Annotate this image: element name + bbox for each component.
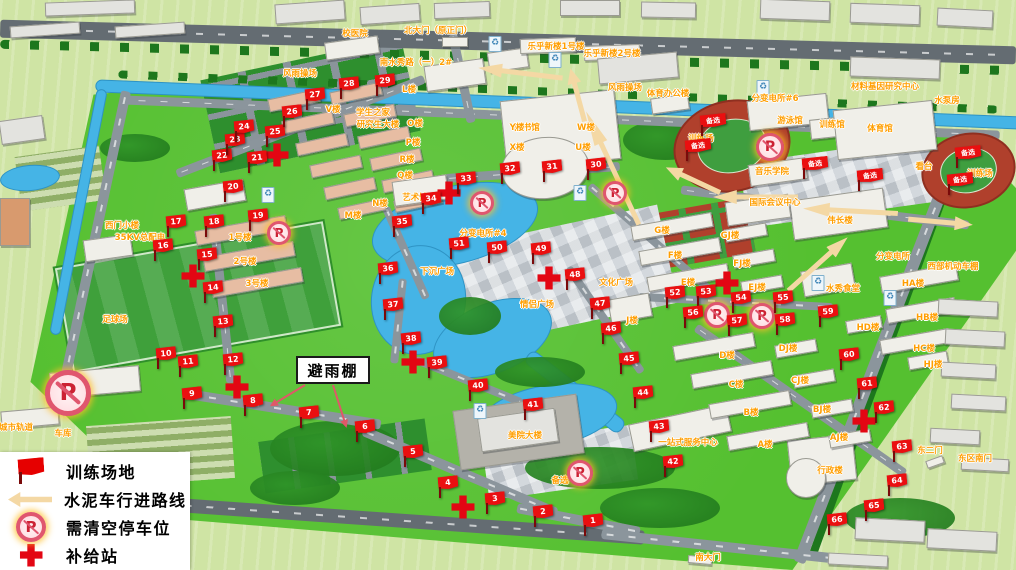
building [945,328,1006,347]
legend-label: 水泥车行进路线 [64,487,187,511]
training-flag-36: 36 [378,262,398,285]
clear-parking-marker: P [756,133,784,161]
building [45,0,135,17]
training-flag-12: 12 [223,353,243,376]
training-flag-54: 54 [731,291,751,314]
training-flag-3: 3 [485,492,505,515]
flag-pole [450,248,452,259]
training-flag-56: 56 [683,306,703,329]
map-label: 城市轨道 [0,421,33,433]
flag-pole [179,366,181,377]
training-flag-62: 62 [874,401,894,424]
map-label: HJ楼 [924,358,943,370]
map-label: 水秀食堂 [826,282,860,294]
map-label: 足球场 [102,313,128,325]
building [640,2,695,19]
flag-pole [566,279,568,290]
flag-pole [875,412,877,423]
legend-row-route: 水泥车行进路线 [8,485,182,513]
flag-pole [840,359,842,370]
flag-pole [774,302,776,313]
flag-pole [858,180,860,191]
map-label: HA楼 [902,277,924,289]
training-flag-49: 49 [531,242,551,265]
building [940,361,996,379]
flag-pole [356,431,358,442]
flag-pole [428,367,430,378]
map-label: 乐乎新楼2号楼 [584,47,641,59]
flag-pole [198,259,200,270]
map-label: 分变电所#6 [751,92,798,104]
training-flag-66: 66 [827,513,847,536]
map-label: 风雨操场 [608,81,642,93]
training-flag-15: 15 [197,248,217,271]
map-label: 南大门 [695,551,721,563]
legend-row-supply: 补给站 [8,541,182,569]
backup-flag: 备选 [700,114,726,137]
map-label: P楼 [406,136,421,148]
no-parking-icon: P [8,513,54,541]
building [442,37,468,47]
map-label: 2号楼 [234,255,257,267]
building [850,56,941,79]
clear-parking-marker: P [567,460,593,486]
flag-pole [224,364,226,375]
flag-pole [248,162,250,173]
training-flag-58: 58 [775,313,795,336]
flag-pole [244,405,246,416]
flag-banner: 备选 [946,172,973,187]
recycle-bin-icon: ♻ [884,290,897,306]
map-label: AJ楼 [830,431,848,443]
recycle-bin-icon: ♻ [574,185,587,201]
training-flag-47: 47 [590,297,610,320]
backup-flag: 备选 [947,173,973,196]
flag-pole [819,316,821,327]
map-label: 北大门（原正门） [404,24,472,36]
legend-label: 训练场地 [66,459,136,483]
training-flag-14: 14 [203,281,223,304]
building [850,3,921,25]
flag-pole [157,358,159,369]
legend-label: 需清空停车位 [66,515,171,539]
map-label: HB楼 [916,311,938,323]
flag-pole [167,226,169,237]
flag-pole [803,168,805,179]
map-label: 体育办公楼 [647,87,690,99]
map-label: 国际会议中心 [749,196,800,208]
map-label: 东二门 [917,444,943,456]
flag-pole [532,253,534,264]
training-flag-18: 18 [204,215,224,238]
map-label: CJ楼 [791,374,809,386]
building [930,427,981,445]
map-label: DJ楼 [779,342,798,354]
flag-pole [213,160,215,171]
building [828,552,889,567]
training-flag-64: 64 [887,474,907,497]
building [0,198,30,246]
map-label: 音乐学院 [755,165,789,177]
flag-pole [266,136,268,147]
clear-parking-marker: P [267,221,291,245]
map-label: 东区南门 [958,452,992,464]
map-label: Q楼 [397,169,413,181]
flag-pole [602,333,604,344]
flag-banner: 备选 [684,138,711,153]
building [0,115,45,145]
flag-pole [457,183,459,194]
map-label: C楼 [729,378,744,390]
flag-pole [584,525,586,536]
flag-pole [666,297,668,308]
flag-pole [686,150,688,161]
training-flag-31: 31 [542,160,562,183]
legend-label: 补给站 [66,543,119,567]
map-label: 校医院 [342,27,368,39]
flag-pole [684,317,686,328]
building [359,3,420,25]
map-label: 研究生大楼 [357,118,400,130]
map-label: FJ楼 [733,257,750,269]
flag-pole [587,169,589,180]
flag-pole [728,325,730,336]
training-flag-43: 43 [649,420,669,443]
map-label: X楼 [509,141,524,153]
training-flag-29: 29 [375,74,395,97]
flag-pole [620,363,622,374]
flag-pole [634,397,636,408]
map-label: F楼 [668,249,682,261]
flag-pole [650,431,652,442]
tree-grove [270,421,400,476]
training-flag-13: 13 [213,315,233,338]
building [925,455,945,469]
map-label: Y楼 [510,121,525,133]
map-label: 游泳馆 [777,114,803,126]
map-label: 材料基因研究中心 [851,80,919,92]
map-label: 行政楼 [817,464,843,476]
training-flag-7: 7 [299,406,319,429]
tree-grove [250,471,340,505]
map-label: 看台 [915,160,932,172]
flag-pole [300,417,302,428]
training-flag-19: 19 [248,209,268,232]
map-legend: 训练场地 水泥车行进路线 P 需清空停车位 补给站 [0,452,190,570]
training-flag-61: 61 [857,377,877,400]
flag-pole [226,144,228,155]
map-label: 伟长楼 [827,214,853,226]
recycle-bin-icon: ♻ [262,187,275,203]
clear-parking-marker: P [45,370,91,416]
rain-shelter-callout: 避雨棚 [296,356,370,384]
flag-pole [865,510,867,521]
recycle-bin-icon: ♻ [474,403,487,419]
flag-pole [948,184,950,195]
building [938,298,999,317]
map-label: 1号楼 [229,231,252,243]
building [760,0,831,21]
training-flag-21: 21 [247,151,267,174]
training-flag-55: 55 [773,291,793,314]
backup-flag: 备选 [802,157,828,180]
legend-row-parking: P 需清空停车位 [8,513,182,541]
flag-pole [249,220,251,231]
flag-pole [888,485,890,496]
training-flag-30: 30 [586,158,606,181]
building [937,8,994,29]
training-flag-33: 33 [456,172,476,195]
flag-pole [235,131,237,142]
map-label: 分变电所 [876,250,910,262]
training-flag-38: 38 [401,332,421,355]
training-flag-40: 40 [468,379,488,402]
map-label: 学生之家 [356,106,390,118]
map-label: N楼 [372,197,388,209]
flag-pole [340,88,342,99]
backup-flag: 备选 [955,146,981,169]
map-label: 文化广场 [599,276,633,288]
clear-parking-marker: P [603,181,627,205]
training-flag-25: 25 [265,125,285,148]
training-flag-59: 59 [818,305,838,328]
training-flag-16: 16 [153,239,173,262]
flag-banner: 备选 [801,156,828,171]
flag-banner: 备选 [954,145,981,160]
map-label: 情侣广场 [520,298,554,310]
building [560,0,620,16]
training-flag-10: 10 [156,347,176,370]
map-label: 训练馆 [819,118,845,130]
recycle-bin-icon: ♻ [549,52,562,68]
training-flag-27: 27 [305,88,325,111]
map-label: 风雨操场 [283,67,317,79]
training-flag-60: 60 [839,348,859,371]
training-flag-35: 35 [392,215,412,238]
flag-pole [534,516,536,527]
training-flag-9: 9 [182,387,202,410]
tree-grove [439,297,501,335]
map-label: HC楼 [913,342,935,354]
map-label: 西门小楼 [105,219,139,231]
flag-pole [376,85,378,96]
training-flag-6: 6 [355,420,375,443]
flag-pole [393,226,395,237]
map-label: 备选 [551,474,568,486]
flag-pole [224,191,226,202]
map-label: 车库 [54,427,71,439]
map-label: 美院大楼 [508,429,542,441]
flag-pole [543,171,545,182]
training-flag-39: 39 [427,356,447,379]
map-label: GJ楼 [721,229,740,241]
flag-pole [776,324,778,335]
training-flag-41: 41 [523,398,543,421]
flag-pole [204,292,206,303]
tree-grove [495,357,585,387]
map-label: BJ楼 [813,403,831,415]
training-flag-24: 24 [234,120,254,143]
clear-parking-marker: P [749,303,775,329]
backup-flag: 备选 [857,169,883,192]
training-flag-34: 34 [421,192,441,215]
flag-pole [384,309,386,320]
map-label: U楼 [575,141,590,153]
training-flag-65: 65 [864,499,884,522]
map-label: B楼 [744,406,759,418]
training-flag-17: 17 [166,215,186,238]
flag-pole [283,116,285,127]
training-flag-45: 45 [619,352,639,375]
training-flag-26: 26 [282,105,302,128]
training-flag-28: 28 [339,77,359,100]
map-label: O楼 [407,117,423,129]
training-flag-53: 53 [696,285,716,308]
flag-pole [591,308,593,319]
cross-icon [8,541,54,569]
building [950,393,1006,411]
recycle-bin-icon: ♻ [489,36,502,52]
training-flag-5: 5 [403,445,423,468]
flag-pole [488,252,490,263]
flag-pole [439,487,441,498]
map-label: A楼 [757,438,772,450]
flag-pole [858,388,860,399]
map-label: 南水秀路（一）2# [380,56,453,68]
flag-pole [154,250,156,261]
training-flag-51: 51 [449,237,469,260]
flag-pole [732,302,734,313]
training-flag-63: 63 [892,440,912,463]
training-flag-52: 52 [665,286,685,309]
flag-pole [524,409,526,420]
backup-flag: 备选 [685,139,711,162]
map-label: D楼 [719,349,735,361]
flag-pole [469,390,471,401]
flag-pole [404,456,406,467]
building [434,1,491,19]
map-label: G楼 [654,224,669,236]
training-flag-46: 46 [601,322,621,345]
training-flag-37: 37 [383,298,403,321]
map-label: 下沉广场 [420,265,454,277]
map-label: W楼 [577,121,595,133]
training-flag-32: 32 [500,162,520,185]
flag-pole [379,273,381,284]
map-label: L楼 [402,83,416,95]
training-flag-8: 8 [243,394,263,417]
flag-pole [828,524,830,535]
flag-pole [205,226,207,237]
flag-banner: 备选 [856,168,883,183]
map-label: 西部机动车棚 [927,260,978,272]
map-label: J楼 [626,314,638,326]
flag-pole [422,203,424,214]
flag-pole [501,173,503,184]
flag-pole [214,326,216,337]
flag-pole [306,99,308,110]
training-flag-48: 48 [565,268,585,291]
training-flag-11: 11 [178,355,198,378]
legend-row-training: 训练场地 [8,457,182,485]
training-flag-50: 50 [487,241,507,264]
flag-banner: 备选 [699,113,726,128]
map-label: M楼 [345,209,362,221]
building [274,0,345,24]
flag-pole [183,398,185,409]
training-flag-4: 4 [438,476,458,499]
training-flag-1: 1 [583,514,603,537]
training-flag-42: 42 [663,455,683,478]
flag-pole [664,466,666,477]
map-label: V楼 [325,103,340,115]
training-flag-44: 44 [633,386,653,409]
route-arrow-icon [8,485,52,513]
building [927,528,998,552]
flag-pole [956,157,958,168]
recycle-bin-icon: ♻ [812,275,825,291]
flag-pole [893,451,895,462]
training-flag-20: 20 [223,180,243,203]
map-label: R楼 [399,153,414,165]
flag-pole [701,125,703,136]
flag-icon [8,457,54,485]
training-flag-57: 57 [727,314,747,337]
flag-pole [486,503,488,514]
map-label: HD楼 [857,321,880,333]
training-flag-2: 2 [533,505,553,528]
map-label: 水泵房 [934,94,960,106]
map-label: 3号楼 [246,277,269,289]
map-label: 体育馆 [867,122,893,134]
map-label: 乐乎新楼1号楼 [528,40,585,52]
campus-map: 避雨棚 训练场地 水泥车行进路线 P 需清空停车位 补给站 ♻♻♻♻♻♻♻♻ [0,0,1016,570]
flag-pole [402,343,404,354]
